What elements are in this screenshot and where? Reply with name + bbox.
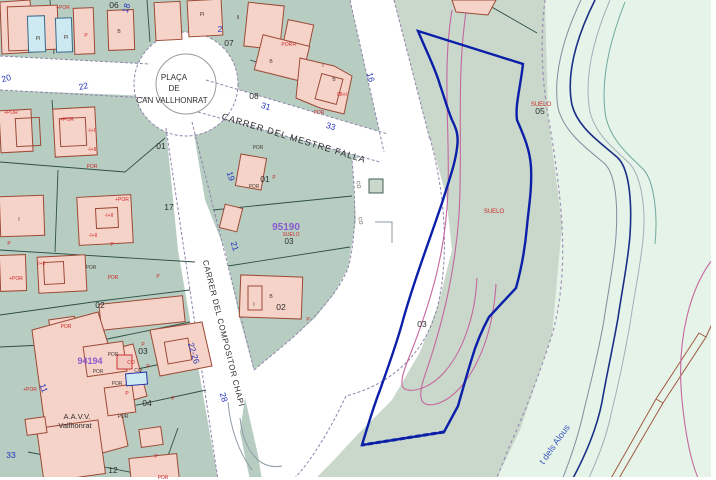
building: [154, 1, 182, 40]
building: [77, 195, 133, 246]
building: [53, 107, 97, 157]
page-margin-right: [711, 0, 716, 480]
plaza-roundabout: [134, 32, 238, 136]
pool: [27, 16, 45, 53]
building: [104, 384, 136, 416]
road-notch: [369, 179, 383, 193]
building: [25, 417, 47, 436]
pool: [126, 372, 148, 386]
building: [187, 0, 223, 37]
building: [0, 195, 45, 237]
building: [107, 10, 134, 51]
building: [0, 255, 27, 292]
building: [150, 322, 212, 376]
map-canvas: PLAÇADECAN VALLHONRATCARRER DEL MESTRE F…: [0, 0, 716, 480]
building: [73, 8, 95, 55]
building: [37, 255, 87, 293]
building: [239, 275, 302, 319]
building: [139, 427, 163, 448]
building: [129, 454, 179, 480]
cadastral-map: PLAÇADECAN VALLHONRATCARRER DEL MESTRE F…: [0, 0, 716, 480]
co-structure: [117, 355, 132, 369]
pool: [55, 18, 72, 53]
building: [235, 154, 266, 190]
